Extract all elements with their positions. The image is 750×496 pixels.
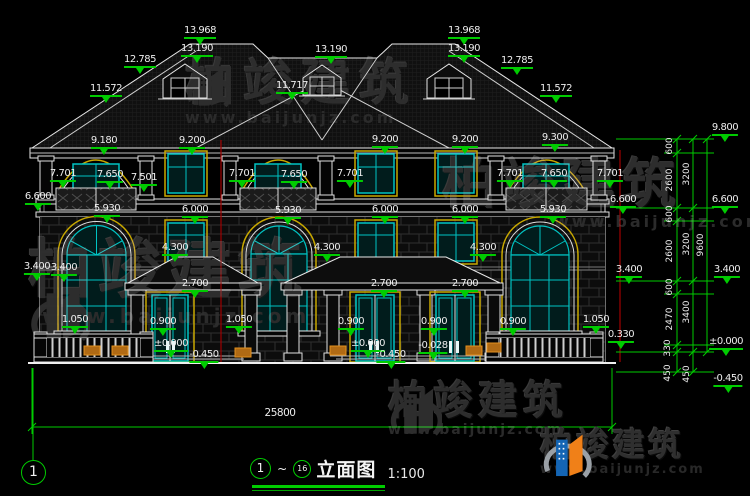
brand-building-icon-color bbox=[540, 428, 592, 486]
cad-elevation-screenshot: 柏竣建筑 www.baijunjz.com 柏竣建筑 www.baijunjz.… bbox=[0, 0, 750, 496]
drawing-title-text: 立面图 bbox=[316, 459, 376, 481]
brand-logo: 柏竣建筑 www.baijunjz.com bbox=[540, 428, 705, 477]
elevation-drawing bbox=[0, 0, 750, 496]
drawing-scale: 1:100 bbox=[387, 467, 424, 482]
title-underline-thin bbox=[252, 490, 385, 491]
sheet-end-bubble: 16 bbox=[293, 460, 311, 478]
title-underline bbox=[252, 485, 385, 488]
axis-grid-bubble: 1 bbox=[21, 460, 46, 485]
range-tilde: ~ bbox=[277, 462, 287, 476]
sheet-start-bubble: 1 bbox=[250, 458, 271, 479]
drawing-title: 1 ~ 16 立面图 1:100 bbox=[250, 455, 430, 482]
overall-width-dimension: 25800 bbox=[265, 407, 296, 419]
